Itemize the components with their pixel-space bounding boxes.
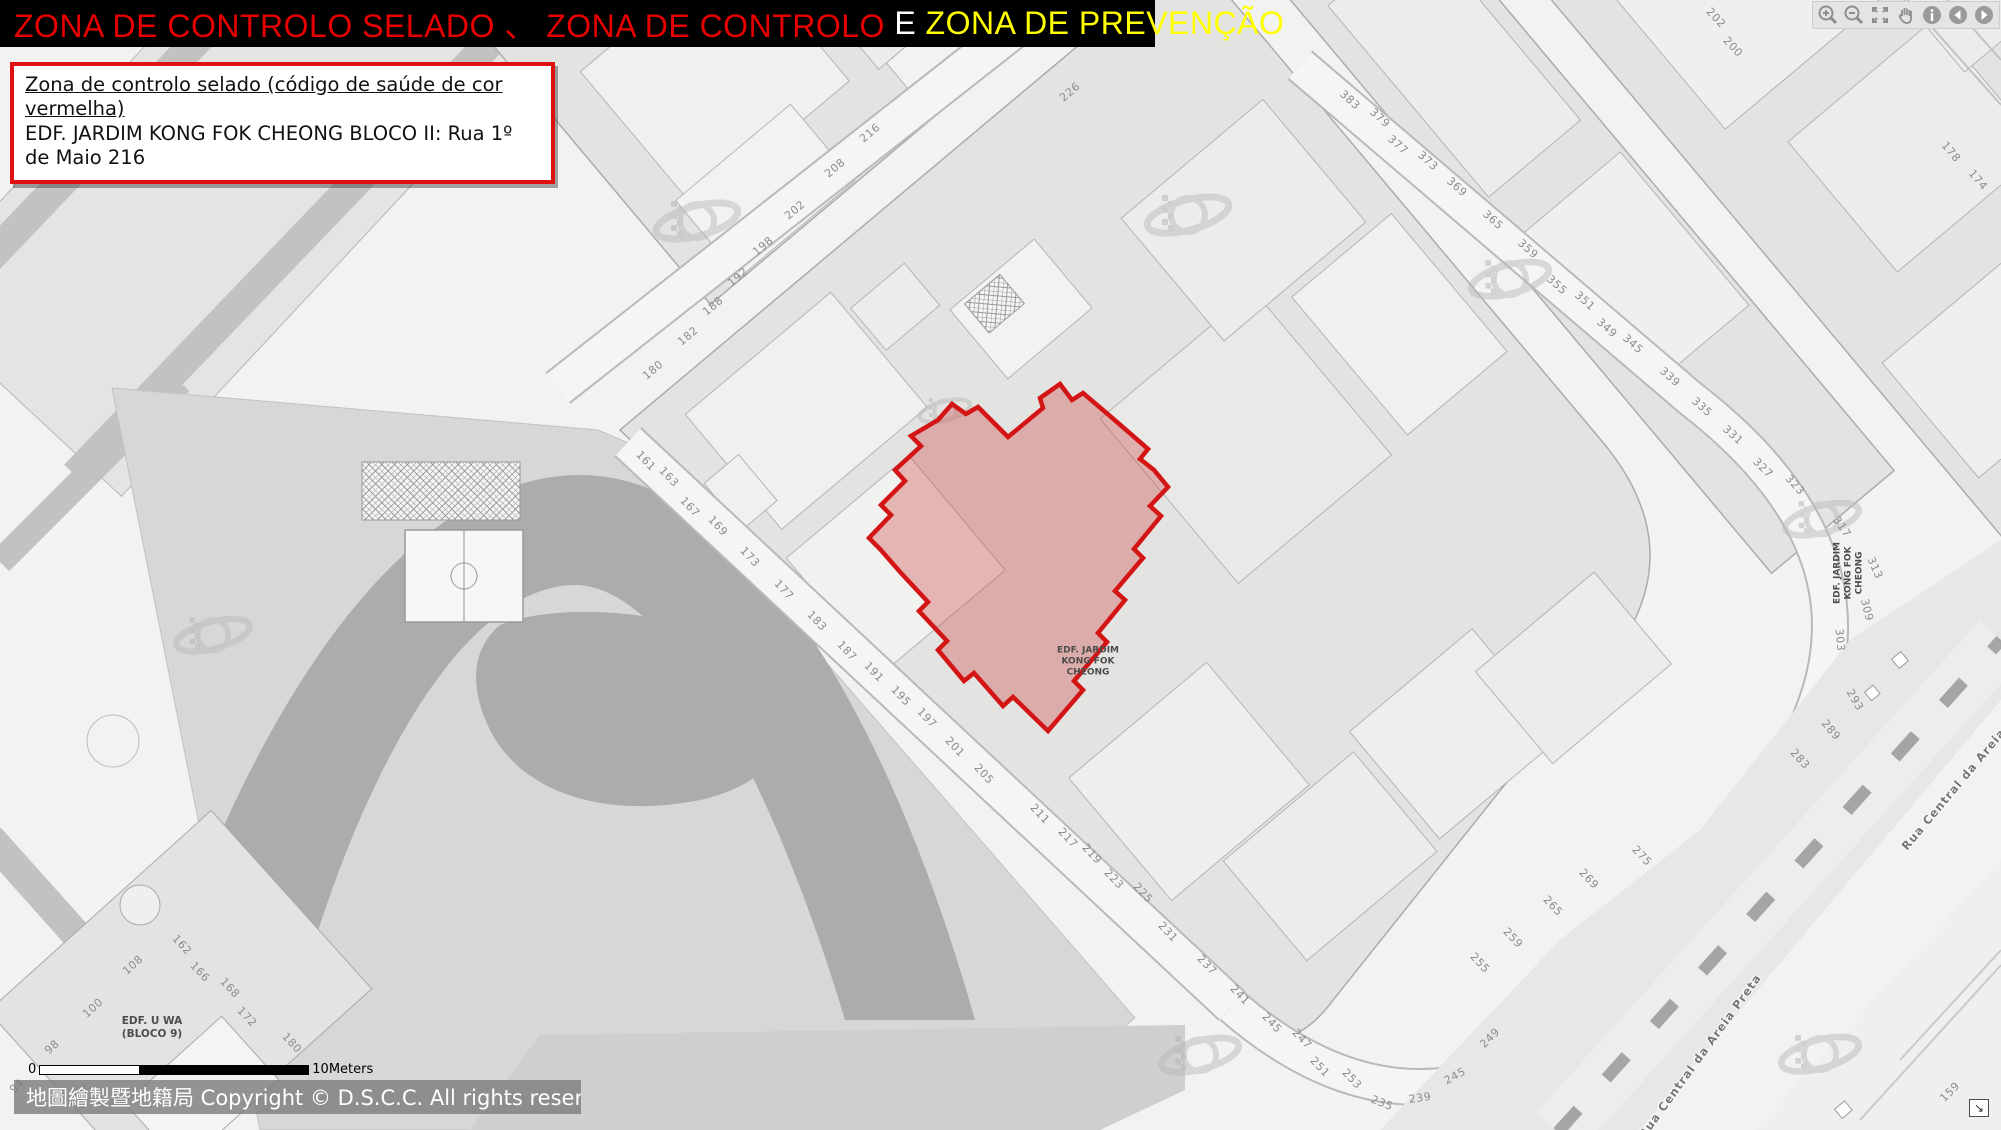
building-name-label: EDF. U WA(BLOCO 9)	[122, 1015, 183, 1041]
full-extent-icon[interactable]	[1869, 3, 1892, 27]
resize-corner-button[interactable]: ↘	[1969, 1099, 1989, 1117]
zoom-in-icon[interactable]	[1817, 3, 1840, 27]
building-name-label: EDF. JARDIMKONG FOKCHEONG	[1057, 646, 1119, 679]
scale-bar: 0 10Meters	[28, 1062, 373, 1077]
next-extent-icon[interactable]	[1972, 3, 1995, 27]
dscc-logo-watermark-icon	[649, 189, 745, 257]
title-bar: ZONA DE CONTROLO SELADO 、 ZONA DE CONTRO…	[0, 0, 1155, 47]
pan-hand-icon[interactable]	[1895, 3, 1918, 27]
map-toolbar	[1812, 1, 2000, 29]
scale-bar-graphic	[39, 1065, 309, 1075]
resize-arrow-icon: ↘	[1974, 1102, 1984, 1114]
identify-icon[interactable]	[1920, 3, 1943, 27]
scale-start-label: 0	[28, 1062, 36, 1077]
dscc-logo-watermark-icon	[1464, 249, 1555, 314]
lot-number-label: 303	[1832, 628, 1847, 652]
zone-info-heading: Zona de controlo selado (código de saúde…	[25, 73, 503, 120]
dscc-logo-watermark-icon	[1154, 1025, 1245, 1090]
previous-extent-icon[interactable]	[1946, 3, 1969, 27]
zoom-out-icon[interactable]	[1843, 3, 1866, 27]
dscc-logo-watermark-icon	[1774, 1024, 1865, 1089]
dscc-logo-watermark-icon	[1140, 183, 1236, 251]
scale-end-label: 10Meters	[312, 1062, 373, 1077]
title-yellow-text: ZONA DE PREVENÇÃO	[916, 5, 1284, 42]
title-white-text: E	[894, 5, 916, 42]
dscc-logo-watermark-icon	[915, 391, 975, 433]
title-red-text: ZONA DE CONTROLO SELADO 、 ZONA DE CONTRO…	[14, 1, 894, 47]
attribution-text: 地圖繪製暨地籍局 Copyright © D.S.C.C. All rights…	[26, 1082, 581, 1112]
zone-info-address: EDF. JARDIM KONG FOK CHEONG BLOCO II: Ru…	[25, 122, 512, 169]
attribution-bar: 地圖繪製暨地籍局 Copyright © D.S.C.C. All rights…	[14, 1080, 581, 1114]
dscc-logo-watermark-icon	[170, 606, 256, 667]
building-name-label: EDF. JARDIMKONG FOKCHEONG	[1833, 542, 1866, 604]
zone-info-box: Zona de controlo selado (código de saúde…	[10, 62, 555, 184]
